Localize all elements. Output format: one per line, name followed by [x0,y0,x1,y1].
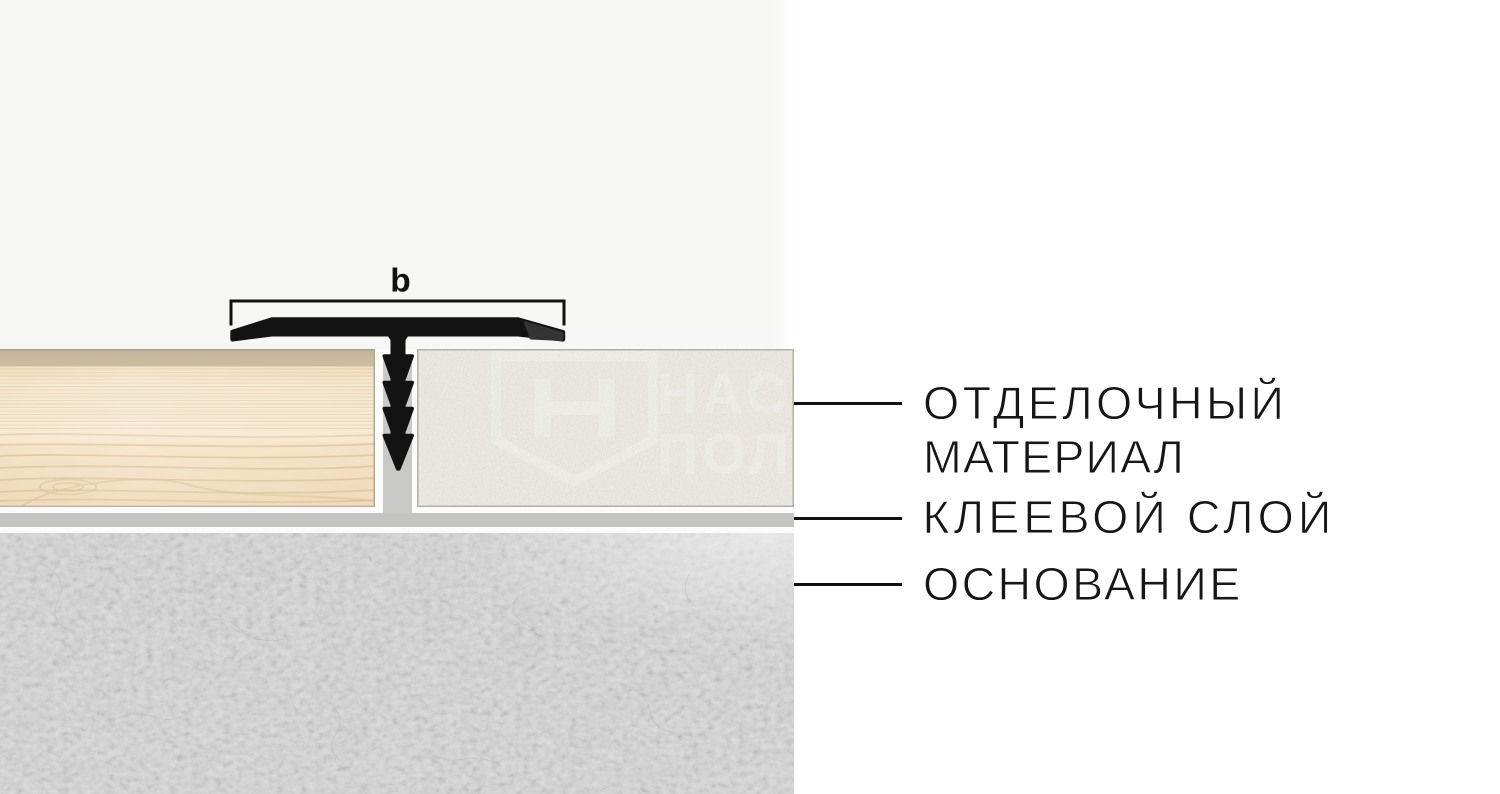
svg-text:b: b [390,263,410,300]
